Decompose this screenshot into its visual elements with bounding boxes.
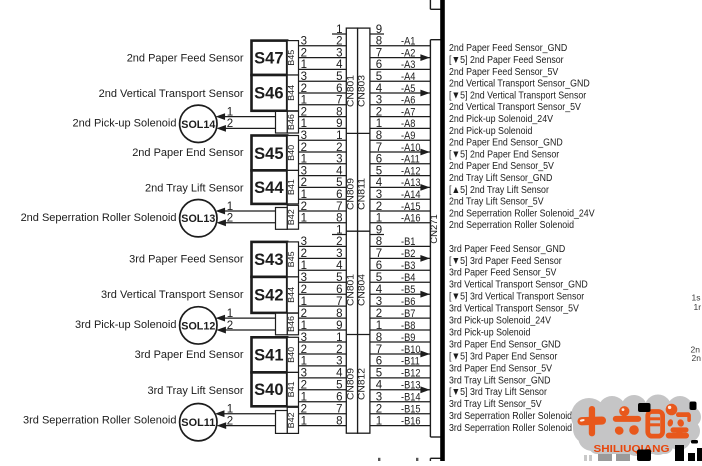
svg-text:3rd Paper Feed Sensor_5V: 3rd Paper Feed Sensor_5V — [449, 267, 556, 279]
svg-text:2: 2 — [301, 83, 307, 95]
svg-text:2nd Vertical Transport Sensor: 2nd Vertical Transport Sensor — [99, 88, 244, 100]
svg-text:1: 1 — [376, 213, 382, 225]
svg-text:2nd Pick-up Solenoid_24V: 2nd Pick-up Solenoid_24V — [449, 113, 553, 125]
svg-text:1: 1 — [301, 260, 307, 272]
svg-text:8: 8 — [336, 106, 342, 118]
svg-text:7: 7 — [336, 201, 342, 213]
svg-text:1: 1 — [301, 320, 307, 332]
svg-text:2: 2 — [301, 47, 307, 59]
svg-text:6: 6 — [336, 189, 342, 201]
svg-text:-B16: -B16 — [401, 415, 421, 427]
svg-text:1: 1 — [227, 106, 233, 118]
svg-text:B40: B40 — [286, 347, 296, 363]
svg-text:-A9: -A9 — [401, 130, 415, 142]
svg-text:4: 4 — [336, 368, 343, 380]
svg-text:8: 8 — [336, 308, 342, 320]
svg-text:7: 7 — [376, 344, 382, 356]
svg-text:-A1: -A1 — [401, 36, 415, 48]
svg-text:S43: S43 — [254, 251, 283, 269]
svg-text:2nd Paper End Sensor: 2nd Paper End Sensor — [132, 147, 244, 159]
svg-text:7: 7 — [336, 296, 342, 308]
svg-text:1: 1 — [301, 95, 307, 107]
svg-text:3: 3 — [376, 392, 382, 404]
svg-text:-B11: -B11 — [401, 356, 420, 368]
svg-text:3rd Seperration Roller Solenoi: 3rd Seperration Roller Solenoid — [449, 422, 572, 434]
svg-text:4: 4 — [376, 380, 383, 392]
svg-text:3rd Pick-up Solenoid: 3rd Pick-up Solenoid — [449, 326, 531, 338]
svg-text:2: 2 — [301, 344, 307, 356]
svg-text:3: 3 — [376, 296, 382, 308]
svg-text:6: 6 — [376, 356, 382, 368]
svg-text:1: 1 — [227, 201, 233, 213]
svg-text:-B14: -B14 — [401, 392, 421, 404]
svg-text:3: 3 — [301, 130, 307, 142]
svg-text:1s: 1s — [692, 292, 701, 302]
svg-text:[▼5] 3rd Tray Lift Sensor: [▼5] 3rd Tray Lift Sensor — [449, 386, 547, 398]
svg-text:3rd Tray Lift Sensor: 3rd Tray Lift Sensor — [148, 385, 244, 397]
svg-text:3rd Pick-up Solenoid_24V: 3rd Pick-up Solenoid_24V — [449, 315, 551, 327]
svg-text:-B6: -B6 — [401, 296, 415, 308]
svg-text:-B13: -B13 — [401, 380, 421, 392]
svg-text:[▼5] 2nd Paper Feed Sensor: [▼5] 2nd Paper Feed Sensor — [449, 54, 564, 66]
svg-text:-A4: -A4 — [401, 71, 415, 83]
svg-text:SOL11: SOL11 — [181, 417, 215, 429]
svg-text:S45: S45 — [254, 145, 283, 163]
svg-text:2: 2 — [301, 106, 307, 118]
svg-text:1: 1 — [301, 415, 307, 427]
svg-text:B41: B41 — [286, 179, 296, 195]
svg-text:1: 1 — [227, 404, 233, 416]
svg-text:7: 7 — [336, 95, 342, 107]
svg-text:2nd Vertical Transport Sensor_: 2nd Vertical Transport Sensor_GND — [449, 78, 590, 90]
svg-text:CN809: CN809 — [345, 178, 355, 210]
svg-text:4: 4 — [376, 284, 383, 296]
svg-text:S41: S41 — [254, 347, 283, 365]
svg-text:3rd Paper End Sensor: 3rd Paper End Sensor — [135, 349, 244, 361]
svg-text:CN271: CN271 — [429, 214, 439, 244]
svg-text:2: 2 — [227, 415, 233, 427]
svg-text:B45: B45 — [286, 50, 296, 66]
svg-text:2nd Seperration Roller Solenoi: 2nd Seperration Roller Solenoid_24V — [449, 207, 595, 219]
svg-text:-A12: -A12 — [401, 165, 421, 177]
svg-text:8: 8 — [336, 213, 342, 225]
svg-text:6: 6 — [376, 260, 382, 272]
svg-text:-A16: -A16 — [401, 213, 421, 225]
svg-text:-A2: -A2 — [401, 47, 415, 59]
svg-text:7: 7 — [376, 142, 382, 154]
svg-text:-B2: -B2 — [401, 248, 415, 260]
svg-text:CN803: CN803 — [357, 75, 367, 107]
svg-text:CN801: CN801 — [345, 75, 355, 107]
svg-text:2: 2 — [301, 248, 307, 260]
svg-text:2nd Paper Feed Sensor_5V: 2nd Paper Feed Sensor_5V — [449, 66, 558, 78]
svg-text:8: 8 — [376, 236, 382, 248]
svg-text:[▼5] 3rd Vertical Transport Se: [▼5] 3rd Vertical Transport Sensor — [449, 291, 585, 303]
svg-text:3: 3 — [336, 356, 342, 368]
svg-text:5: 5 — [336, 71, 342, 83]
svg-text:1: 1 — [376, 415, 382, 427]
svg-text:-B3: -B3 — [401, 260, 415, 272]
svg-text:-B5: -B5 — [401, 284, 415, 296]
svg-text:3rd Pick-up Solenoid: 3rd Pick-up Solenoid — [75, 319, 177, 331]
svg-text:6: 6 — [336, 392, 342, 404]
svg-text:3rd Seperration Roller Solenoi: 3rd Seperration Roller Solenoid — [23, 415, 176, 427]
svg-text:1: 1 — [301, 59, 307, 71]
svg-text:-B12: -B12 — [401, 368, 421, 380]
svg-text:B41: B41 — [286, 381, 296, 397]
svg-text:-A5: -A5 — [401, 83, 415, 95]
svg-text:1: 1 — [336, 224, 342, 236]
svg-text:1: 1 — [301, 189, 307, 201]
svg-text:2nd Paper Feed Sensor: 2nd Paper Feed Sensor — [127, 53, 244, 65]
svg-text:8: 8 — [376, 130, 382, 142]
svg-text:3rd Paper End Sensor_5V: 3rd Paper End Sensor_5V — [449, 362, 552, 374]
svg-text:1: 1 — [301, 118, 307, 130]
svg-text:3: 3 — [336, 154, 342, 166]
svg-text:3: 3 — [301, 36, 307, 48]
svg-text:4: 4 — [376, 177, 383, 189]
svg-text:2: 2 — [301, 404, 307, 416]
svg-text:2: 2 — [376, 106, 382, 118]
svg-text:2nd Pick-up Solenoid: 2nd Pick-up Solenoid — [73, 118, 177, 130]
svg-text:2: 2 — [336, 36, 342, 48]
svg-text:1: 1 — [376, 320, 382, 332]
svg-text:-B4: -B4 — [401, 272, 415, 284]
svg-text:1: 1 — [336, 130, 342, 142]
svg-text:S44: S44 — [254, 179, 284, 197]
svg-text:2: 2 — [336, 236, 342, 248]
svg-text:3rd Paper Feed Sensor: 3rd Paper Feed Sensor — [129, 253, 244, 265]
svg-text:2n: 2n — [692, 353, 702, 363]
svg-text:4: 4 — [376, 83, 383, 95]
svg-text:2nd Paper End Sensor_GND: 2nd Paper End Sensor_GND — [449, 137, 563, 149]
svg-text:3: 3 — [336, 248, 342, 260]
svg-text:2: 2 — [301, 380, 307, 392]
svg-text:3rd Paper Feed Sensor_GND: 3rd Paper Feed Sensor_GND — [449, 243, 566, 255]
svg-text:B44: B44 — [286, 287, 296, 303]
svg-text:2nd Paper End Sensor_5V: 2nd Paper End Sensor_5V — [449, 160, 554, 172]
svg-text:3: 3 — [301, 165, 307, 177]
svg-text:7: 7 — [376, 47, 382, 59]
svg-text:2nd Tray Lift Sensor_GND: 2nd Tray Lift Sensor_GND — [449, 172, 553, 184]
svg-text:6: 6 — [376, 59, 382, 71]
svg-text:8: 8 — [376, 332, 382, 344]
svg-text:2nd Paper Feed Sensor_GND: 2nd Paper Feed Sensor_GND — [449, 42, 568, 54]
svg-text:3rd Vertical Transport Sensor_: 3rd Vertical Transport Sensor_5V — [449, 303, 579, 315]
svg-text:1r: 1r — [694, 302, 702, 312]
svg-text:9: 9 — [336, 320, 342, 332]
svg-text:9: 9 — [336, 118, 342, 130]
svg-text:2: 2 — [376, 308, 382, 320]
svg-text:[▼5] 3rd Paper End Sensor: [▼5] 3rd Paper End Sensor — [449, 350, 558, 362]
svg-text:-A10: -A10 — [401, 142, 421, 154]
svg-text:2: 2 — [376, 404, 382, 416]
svg-text:1: 1 — [301, 356, 307, 368]
svg-text:-A15: -A15 — [401, 201, 421, 213]
svg-text:[▼5] 3rd Paper Feed Sensor: [▼5] 3rd Paper Feed Sensor — [449, 255, 562, 267]
svg-text:-A11: -A11 — [401, 154, 420, 166]
svg-text:S46: S46 — [254, 85, 283, 103]
svg-text:2nd Tray Lift Sensor_5V: 2nd Tray Lift Sensor_5V — [449, 196, 544, 208]
svg-text:6: 6 — [376, 154, 382, 166]
svg-text:B45: B45 — [286, 251, 296, 267]
svg-text:2: 2 — [301, 177, 307, 189]
svg-text:3rd Tray Lift Sensor_GND: 3rd Tray Lift Sensor_GND — [449, 374, 551, 386]
svg-text:1: 1 — [301, 213, 307, 225]
svg-text:2: 2 — [301, 201, 307, 213]
svg-text:SOL14: SOL14 — [181, 119, 216, 131]
svg-text:3: 3 — [376, 95, 382, 107]
svg-text:2: 2 — [301, 142, 307, 154]
svg-text:-B9: -B9 — [401, 332, 415, 344]
svg-text:1: 1 — [376, 118, 382, 130]
svg-text:CN811: CN811 — [357, 178, 367, 210]
svg-text:8: 8 — [336, 415, 342, 427]
svg-text:2nd Pick-up Solenoid: 2nd Pick-up Solenoid — [449, 125, 533, 137]
svg-text:-B15: -B15 — [401, 404, 421, 416]
svg-text:3: 3 — [301, 236, 307, 248]
svg-text:SOL13: SOL13 — [181, 213, 215, 225]
svg-text:3: 3 — [376, 189, 382, 201]
svg-text:7: 7 — [336, 404, 342, 416]
svg-text:-A6: -A6 — [401, 95, 415, 107]
svg-text:5: 5 — [376, 71, 382, 83]
svg-text:2nd Vertical Transport Sensor_: 2nd Vertical Transport Sensor_5V — [449, 101, 581, 113]
svg-text:6: 6 — [336, 83, 342, 95]
svg-text:2: 2 — [336, 344, 342, 356]
svg-text:-B1: -B1 — [401, 236, 415, 248]
svg-text:3: 3 — [336, 47, 342, 59]
svg-text:-B10: -B10 — [401, 344, 421, 356]
svg-text:3: 3 — [301, 368, 307, 380]
svg-text:[▼5] 2nd Paper End Sensor: [▼5] 2nd Paper End Sensor — [449, 148, 560, 160]
svg-text:4: 4 — [336, 260, 343, 272]
svg-text:3: 3 — [301, 272, 307, 284]
svg-text:4: 4 — [336, 165, 343, 177]
svg-text:2: 2 — [301, 284, 307, 296]
svg-text:-A13: -A13 — [401, 177, 421, 189]
svg-text:2: 2 — [301, 308, 307, 320]
svg-text:8: 8 — [376, 36, 382, 48]
svg-text:2nd Tray Lift Sensor: 2nd Tray Lift Sensor — [145, 182, 244, 194]
svg-text:1: 1 — [336, 332, 342, 344]
svg-text:-A14: -A14 — [401, 189, 421, 201]
svg-text:SHILIUQIANG: SHILIUQIANG — [594, 444, 670, 455]
svg-text:-A7: -A7 — [401, 106, 415, 118]
svg-text:4: 4 — [336, 59, 343, 71]
svg-text:-A3: -A3 — [401, 59, 415, 71]
svg-text:3rd Tray Lift Sensor_5V: 3rd Tray Lift Sensor_5V — [449, 398, 542, 410]
svg-text:2: 2 — [227, 213, 233, 225]
svg-text:2: 2 — [336, 142, 342, 154]
svg-text:-A8: -A8 — [401, 118, 415, 130]
svg-text:S47: S47 — [254, 50, 283, 68]
svg-text:S42: S42 — [254, 287, 283, 305]
svg-text:3rd Paper End Sensor_GND: 3rd Paper End Sensor_GND — [449, 338, 561, 350]
svg-text:3rd Vertical Transport Sensor: 3rd Vertical Transport Sensor — [101, 289, 244, 301]
svg-text:6: 6 — [336, 284, 342, 296]
svg-text:CN812: CN812 — [357, 368, 367, 400]
svg-text:2: 2 — [376, 201, 382, 213]
svg-text:3: 3 — [301, 332, 307, 344]
svg-text:CN809: CN809 — [345, 368, 355, 400]
svg-text:B40: B40 — [286, 145, 296, 161]
svg-text:1: 1 — [336, 24, 342, 36]
svg-text:2nd Seperration Roller Solenoi: 2nd Seperration Roller Solenoid — [21, 212, 177, 224]
svg-text:1: 1 — [301, 296, 307, 308]
svg-text:CN804: CN804 — [357, 274, 367, 306]
svg-text:B44: B44 — [286, 85, 296, 101]
svg-text:SOL12: SOL12 — [181, 320, 215, 332]
svg-text:5: 5 — [336, 177, 342, 189]
svg-text:5: 5 — [336, 380, 342, 392]
svg-text:9: 9 — [376, 24, 382, 36]
svg-text:5: 5 — [336, 272, 342, 284]
svg-text:9: 9 — [376, 224, 382, 236]
svg-text:5: 5 — [376, 165, 382, 177]
svg-text:S40: S40 — [254, 381, 283, 399]
svg-text:5: 5 — [376, 368, 382, 380]
svg-text:2: 2 — [227, 320, 233, 332]
svg-text:3: 3 — [301, 71, 307, 83]
svg-text:5: 5 — [376, 272, 382, 284]
svg-text:CN801: CN801 — [345, 274, 355, 306]
svg-text:[▼5] 2nd Vertical Transport Se: [▼5] 2nd Vertical Transport Sensor — [449, 89, 587, 101]
svg-text:2nd Seperration Roller Solenoi: 2nd Seperration Roller Solenoid — [449, 219, 574, 231]
svg-text:3rd Vertical Transport Sensor_: 3rd Vertical Transport Sensor_GND — [449, 279, 588, 291]
svg-text:1: 1 — [227, 308, 233, 320]
svg-text:-B8: -B8 — [401, 320, 415, 332]
svg-text:[▲5] 2nd Tray Lift Sensor: [▲5] 2nd Tray Lift Sensor — [449, 184, 549, 196]
svg-text:7: 7 — [376, 248, 382, 260]
svg-text:-B7: -B7 — [401, 308, 415, 320]
svg-text:1: 1 — [301, 154, 307, 166]
svg-text:1: 1 — [301, 392, 307, 404]
svg-text:2: 2 — [227, 118, 233, 130]
